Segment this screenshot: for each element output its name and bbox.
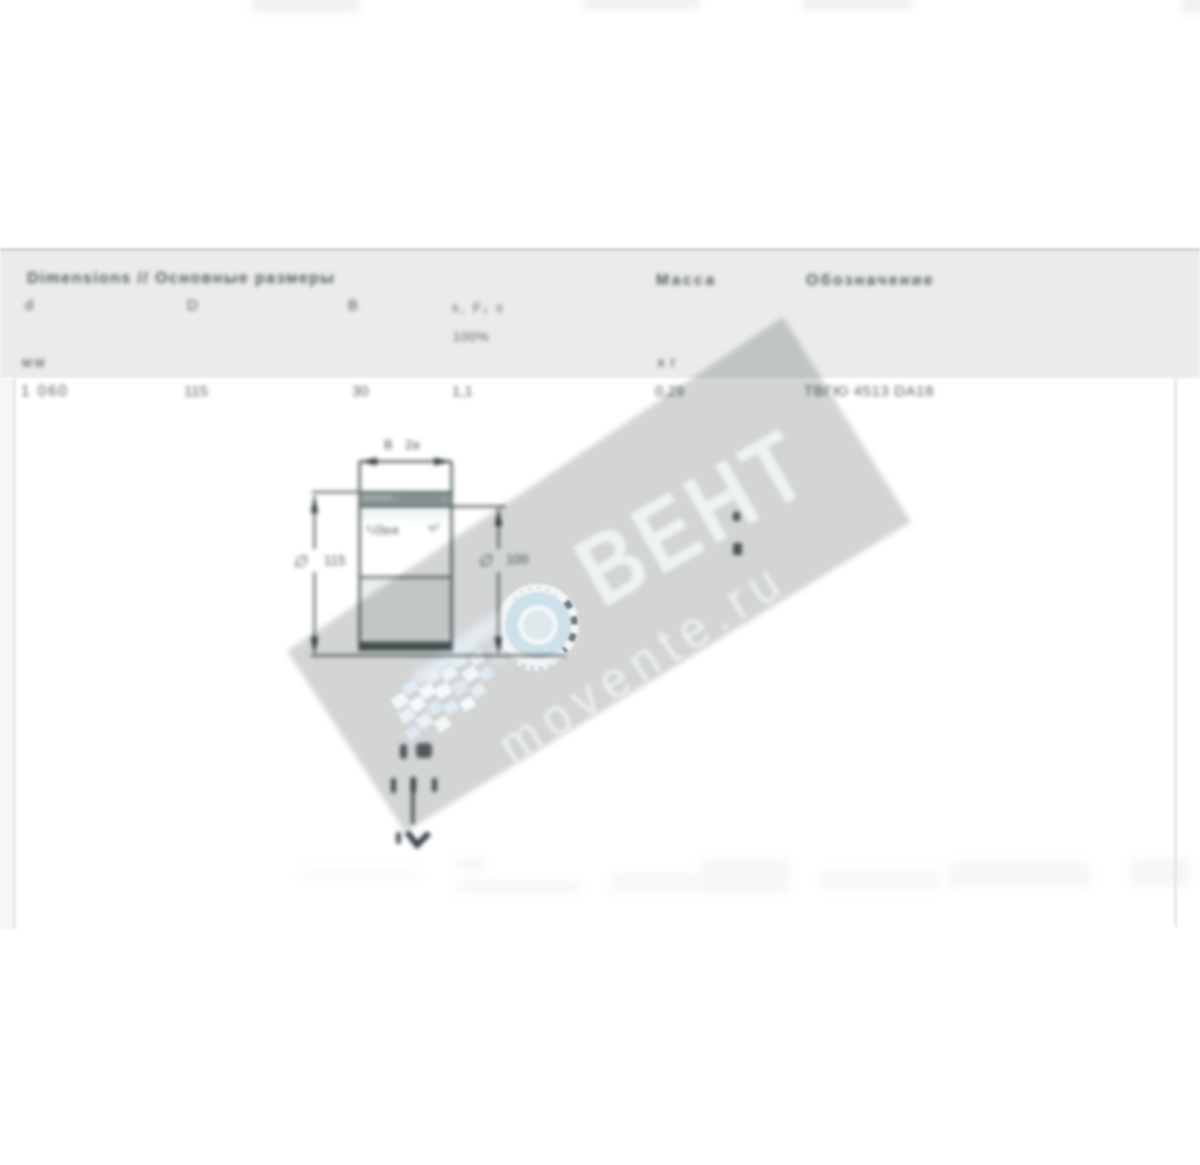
svg-text:d: d — [25, 297, 33, 314]
svg-text:мм: мм — [22, 355, 47, 371]
svg-text:Обозначение: Обозначение — [806, 272, 935, 289]
svg-text:Dimensions // Основные размеры: Dimensions // Основные размеры — [27, 270, 335, 287]
svg-text:1 060: 1 060 — [21, 383, 69, 400]
svg-text:115: 115 — [184, 383, 208, 400]
svg-text:∅: ∅ — [293, 554, 308, 571]
svg-text:Масса: Масса — [656, 272, 717, 289]
svg-text:ч¹: ч¹ — [428, 520, 440, 535]
svg-text:s, F₁ s: s, F₁ s — [452, 300, 505, 315]
svg-text:1,1: 1,1 — [452, 383, 473, 400]
svg-text:30: 30 — [352, 383, 369, 400]
svg-text:кг: кг — [658, 354, 682, 371]
svg-text:B: B — [384, 437, 393, 452]
svg-text:D: D — [187, 297, 198, 314]
svg-text:2a: 2a — [405, 437, 420, 452]
svg-text:B: B — [348, 297, 358, 314]
svg-text:115: 115 — [324, 553, 346, 568]
svg-text:⁵/дея: ⁵/дея — [366, 522, 399, 538]
svg-text:100%: 100% — [453, 329, 489, 344]
